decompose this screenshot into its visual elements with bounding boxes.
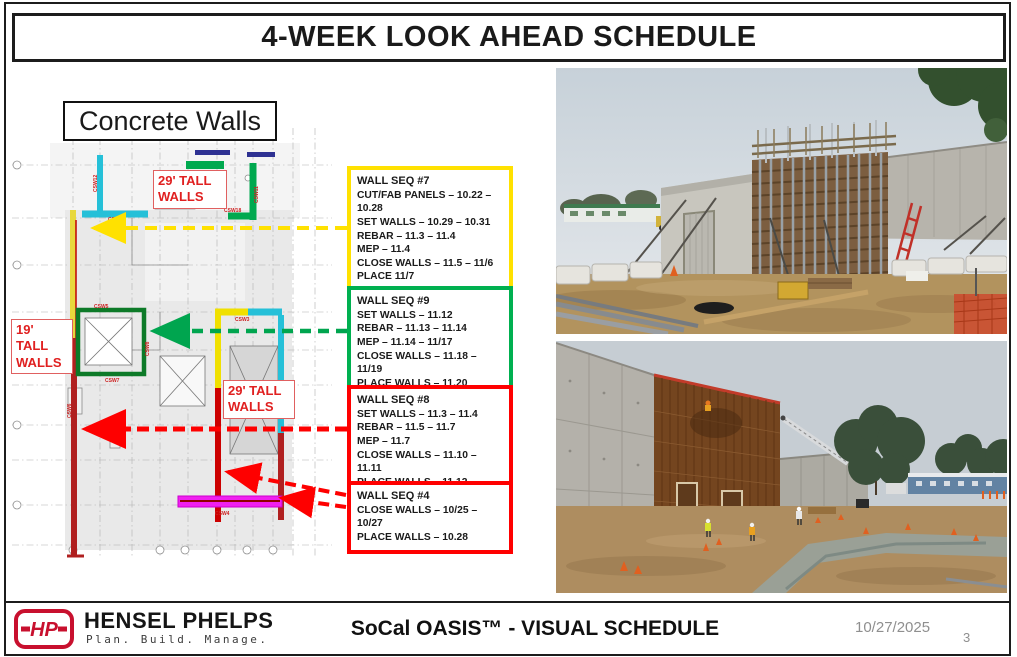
footer-divider bbox=[4, 601, 1009, 603]
callout-line: CLOSE WALLS – 10/25 – 10/27 bbox=[357, 504, 503, 531]
callout-line: REBAR – 11.5 – 11.7 bbox=[357, 421, 503, 435]
callout-title: WALL SEQ #7 bbox=[357, 174, 503, 189]
callout-line: SET WALLS – 11.12 bbox=[357, 309, 503, 323]
callout-line: MEP – 11.14 – 11/17 bbox=[357, 336, 503, 350]
plan-title: Concrete Walls bbox=[63, 101, 277, 141]
callout-line: REBAR – 11.13 – 11.14 bbox=[357, 322, 503, 336]
brand-tagline: Plan. Build. Manage. bbox=[86, 633, 268, 646]
bottom-photo bbox=[556, 341, 1007, 593]
wood-table bbox=[808, 507, 836, 514]
callout-line: CLOSE WALLS – 11.5 – 11/6 bbox=[357, 257, 503, 271]
callout-line: MEP – 11.4 bbox=[357, 243, 503, 257]
wall-tag-csw18: CSW18 bbox=[224, 208, 241, 214]
callout-wall-seq-9: WALL SEQ #9 SET WALLS – 11.12 REBAR – 11… bbox=[347, 286, 513, 399]
label-19-tall-walls: 19' TALL WALLS bbox=[11, 319, 73, 374]
hensel-phelps-logo: HP bbox=[14, 609, 74, 649]
page-title: 4-WEEK LOOK AHEAD SCHEDULE bbox=[261, 21, 756, 54]
wall-tag-csw9: CSW9 bbox=[108, 217, 123, 223]
page-number: 3 bbox=[963, 630, 970, 645]
wall-tag-csw11: CSW11 bbox=[254, 186, 260, 203]
callout-title: WALL SEQ #4 bbox=[357, 489, 503, 504]
label-29-tall-walls-b: 29' TALL WALLS bbox=[223, 380, 295, 419]
wall-tag-csw4: CSW4 bbox=[215, 511, 230, 517]
slide-date: 10/27/2025 bbox=[855, 619, 930, 636]
callout-line: REBAR – 11.3 – 11.4 bbox=[357, 230, 503, 244]
callout-line: SET WALLS – 11.3 – 11.4 bbox=[357, 408, 503, 422]
wall-tag-csw7: CSW7 bbox=[105, 378, 120, 384]
wall-tag-csw6: CSW6 bbox=[67, 403, 73, 418]
callout-title: WALL SEQ #8 bbox=[357, 393, 503, 408]
callout-line: MEP – 11.7 bbox=[357, 435, 503, 449]
callout-line: CLOSE WALLS – 11.10 – 11.11 bbox=[357, 449, 503, 476]
callout-title: WALL SEQ #9 bbox=[357, 294, 503, 309]
top-photo bbox=[556, 68, 1007, 334]
slide: 4-WEEK LOOK AHEAD SCHEDULE bbox=[0, 0, 1017, 657]
callout-line: PLACE WALLS – 10.28 bbox=[357, 531, 503, 545]
callout-line: PLACE 11/7 bbox=[357, 270, 503, 284]
equipment-box bbox=[856, 499, 869, 508]
logo-text: HP bbox=[30, 619, 58, 641]
wall-tag-csw12: CSW12 bbox=[93, 175, 99, 192]
brand-name: HENSEL PHELPS bbox=[84, 608, 273, 634]
header: 4-WEEK LOOK AHEAD SCHEDULE bbox=[12, 13, 1006, 62]
callout-line: SET WALLS – 10.29 – 10.31 bbox=[357, 216, 503, 230]
footer-title: SoCal OASIS™ - VISUAL SCHEDULE bbox=[320, 617, 750, 641]
wall-tag-csw8: CSW8 bbox=[145, 341, 151, 356]
wall-tag-csw5: CSW5 bbox=[94, 304, 109, 310]
wall-tag-csw3: CSW3 bbox=[235, 317, 250, 323]
callout-wall-seq-4: WALL SEQ #4 CLOSE WALLS – 10/25 – 10/27 … bbox=[347, 481, 513, 554]
callout-wall-seq-7: WALL SEQ #7 CUT/FAB PANELS – 10.22 – 10.… bbox=[347, 166, 513, 293]
callout-line: CLOSE WALLS – 11.18 – 11/19 bbox=[357, 350, 503, 377]
label-29-tall-walls-a: 29' TALL WALLS bbox=[153, 170, 227, 209]
callout-line: CUT/FAB PANELS – 10.22 – 10.28 bbox=[357, 189, 503, 216]
